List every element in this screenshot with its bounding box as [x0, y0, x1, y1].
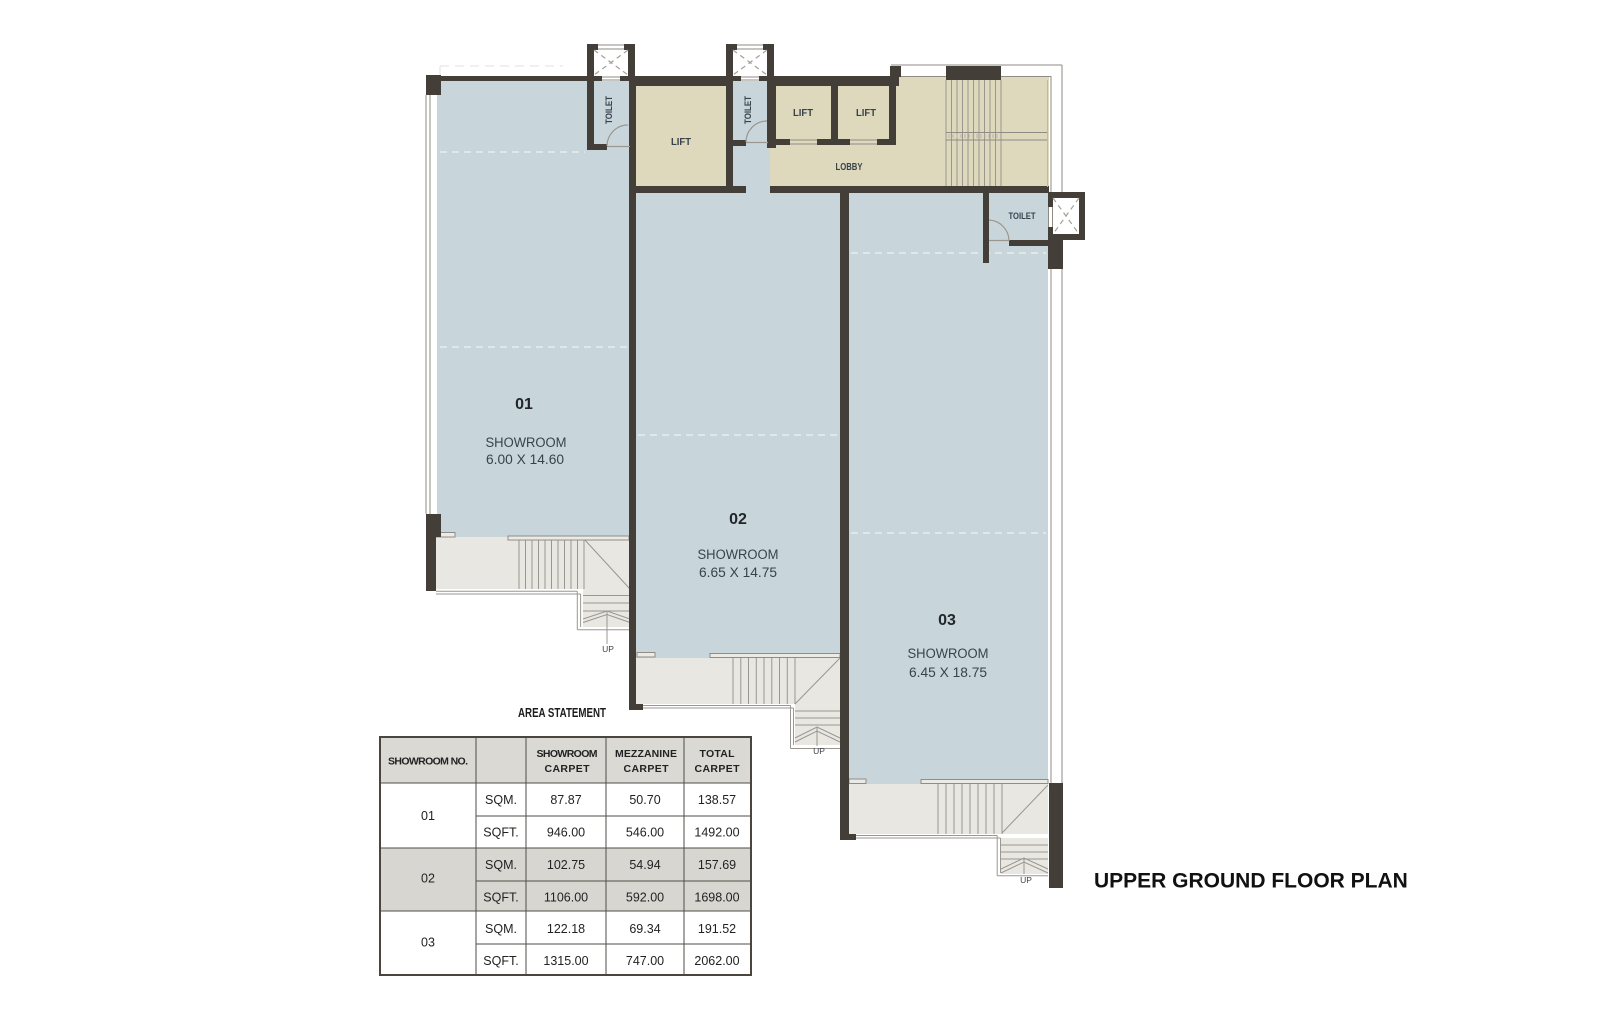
svg-text:01: 01 [421, 809, 435, 823]
svg-text:TOTAL: TOTAL [700, 748, 736, 760]
svg-text:SHOWROOM: SHOWROOM [698, 547, 779, 562]
svg-text:SHOWROOM: SHOWROOM [908, 646, 989, 661]
svg-text:CARPET: CARPET [695, 763, 741, 775]
svg-text:50.70: 50.70 [629, 793, 660, 807]
svg-text:191.52: 191.52 [698, 922, 736, 936]
svg-text:TOILET: TOILET [604, 96, 615, 124]
svg-text:01: 01 [515, 396, 533, 413]
svg-text:CARPET: CARPET [545, 763, 591, 775]
svg-text:UP: UP [813, 746, 825, 756]
svg-text:SQFT.: SQFT. [483, 891, 518, 905]
svg-text:747.00: 747.00 [626, 954, 664, 968]
svg-text:592.00: 592.00 [626, 891, 664, 905]
svg-text:946.00: 946.00 [547, 826, 585, 840]
svg-text:UP: UP [1020, 875, 1032, 885]
svg-text:1106.00: 1106.00 [544, 891, 588, 905]
svg-text:2062.00: 2062.00 [694, 954, 739, 968]
svg-text:SHOWROOM: SHOWROOM [537, 748, 598, 760]
svg-text:03: 03 [421, 936, 435, 950]
svg-text:69.34: 69.34 [629, 922, 660, 936]
svg-text:02: 02 [421, 872, 435, 886]
svg-text:102.75: 102.75 [547, 858, 585, 872]
svg-text:1315.00: 1315.00 [543, 954, 588, 968]
svg-text:SHOWROOM NO.: SHOWROOM NO. [388, 756, 468, 768]
svg-text:LOBBY: LOBBY [836, 162, 863, 173]
svg-text:LIFT: LIFT [671, 136, 692, 148]
svg-text:SQFT.: SQFT. [483, 954, 518, 968]
svg-text:AREA STATEMENT: AREA STATEMENT [518, 705, 606, 720]
svg-text:138.57: 138.57 [698, 793, 736, 807]
svg-text:6.00 X 14.60: 6.00 X 14.60 [486, 452, 564, 467]
svg-text:546.00: 546.00 [626, 826, 664, 840]
svg-text:TOILET: TOILET [1009, 211, 1036, 222]
svg-text:MEZZANINE: MEZZANINE [615, 748, 677, 760]
svg-text:LIFT: LIFT [793, 108, 813, 119]
svg-text:87.87: 87.87 [550, 793, 581, 807]
svg-text:SQM.: SQM. [485, 793, 517, 807]
svg-text:SQFT.: SQFT. [483, 826, 518, 840]
svg-text:54.94: 54.94 [629, 858, 660, 872]
svg-text:UPPER GROUND FLOOR PLAN: UPPER GROUND FLOOR PLAN [1094, 870, 1408, 893]
svg-text:1492.00: 1492.00 [694, 826, 739, 840]
svg-text:6.65 X 14.75: 6.65 X 14.75 [699, 565, 777, 580]
svg-text:UP: UP [602, 644, 614, 654]
svg-text:03: 03 [938, 612, 956, 629]
svg-text:157.69: 157.69 [698, 858, 736, 872]
svg-text:CARPET: CARPET [624, 763, 670, 775]
svg-text:6.45 X 18.75: 6.45 X 18.75 [909, 665, 987, 680]
svg-text:SHOWROOM: SHOWROOM [486, 435, 567, 450]
svg-text:SQM.: SQM. [485, 922, 517, 936]
svg-text:122.18: 122.18 [547, 922, 585, 936]
svg-text:SQM.: SQM. [485, 858, 517, 872]
svg-text:02: 02 [729, 511, 747, 528]
svg-text:1698.00: 1698.00 [694, 891, 739, 905]
svg-text:LIFT: LIFT [856, 108, 876, 119]
svg-text:TOILET: TOILET [743, 96, 754, 124]
